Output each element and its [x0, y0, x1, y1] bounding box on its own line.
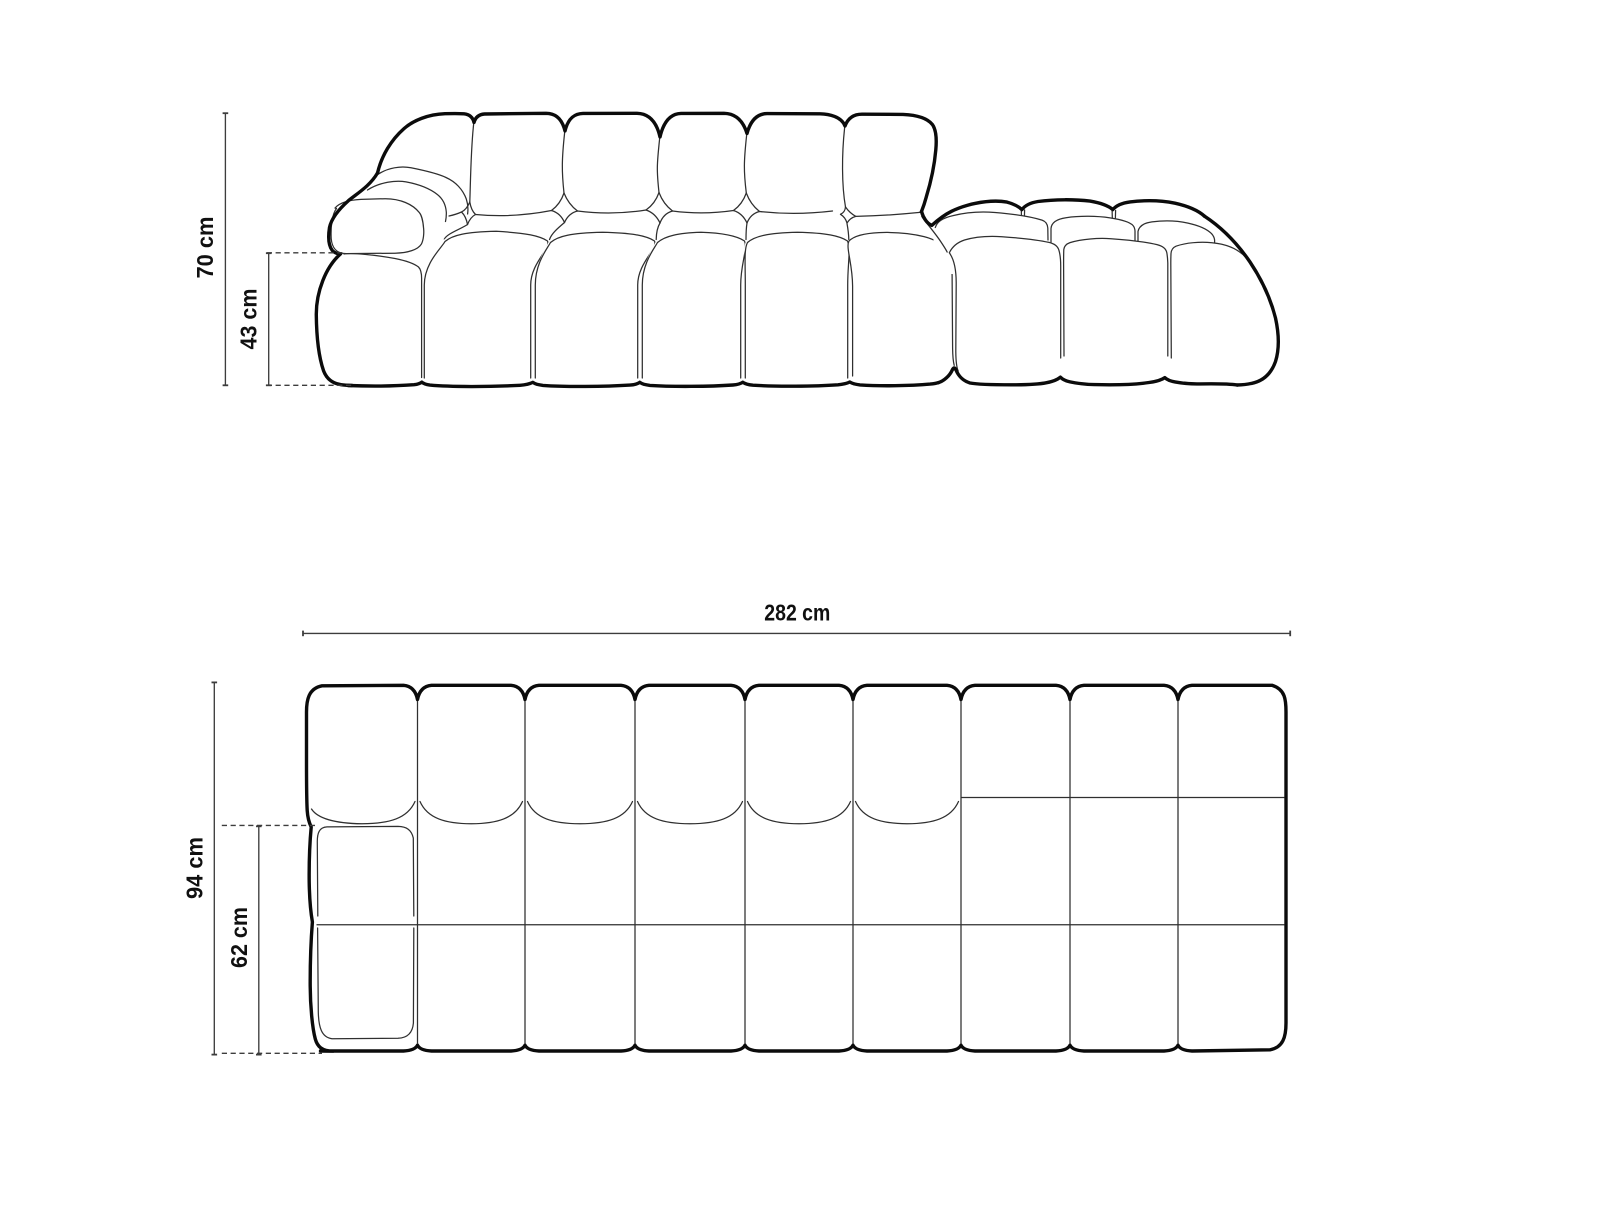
svg-text:62 cm: 62 cm	[226, 907, 252, 968]
svg-text:43 cm: 43 cm	[236, 289, 262, 350]
svg-text:282 cm: 282 cm	[764, 599, 830, 625]
svg-text:70 cm: 70 cm	[192, 217, 218, 279]
svg-text:94 cm: 94 cm	[181, 837, 207, 899]
